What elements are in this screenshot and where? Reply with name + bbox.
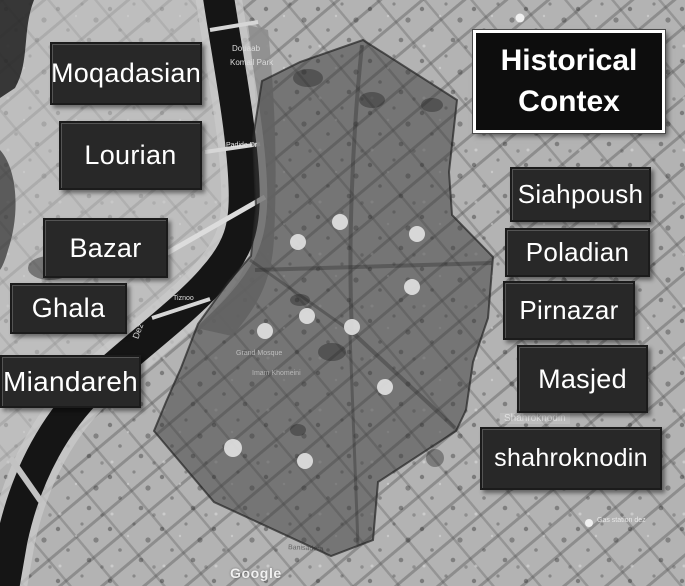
region-label-poladian: Poladian [505, 228, 650, 277]
historical-context-figure: Douaab Komail Park Padide Dr Tiznoo Dez … [0, 0, 685, 586]
site-marker [404, 279, 420, 295]
region-label-miandareh: Miandareh [0, 355, 141, 408]
region-label-bazar: Bazar [43, 218, 168, 278]
site-marker [377, 379, 393, 395]
region-label-lourian: Lourian [59, 121, 202, 190]
region-label-masjed: Masjed [517, 345, 648, 413]
site-marker [332, 214, 348, 230]
site-marker [297, 453, 313, 469]
region-label-shahroknodin: shahroknodin [480, 427, 662, 490]
site-marker [344, 319, 360, 335]
region-label-pirnazar: Pirnazar [503, 281, 635, 340]
site-marker [299, 308, 315, 324]
region-label-siahpoush: Siahpoush [510, 167, 651, 222]
region-label-ghala: Ghala [10, 283, 127, 334]
site-marker [290, 234, 306, 250]
site-marker [224, 439, 242, 457]
site-marker [257, 323, 273, 339]
poi-dot-top-right [516, 14, 525, 23]
google-watermark: Google [230, 565, 282, 581]
figure-title: Historical Contex [473, 30, 665, 133]
site-marker [409, 226, 425, 242]
poi-dot-gas-station [585, 519, 593, 527]
region-label-moqadasian: Moqadasian [50, 42, 202, 105]
